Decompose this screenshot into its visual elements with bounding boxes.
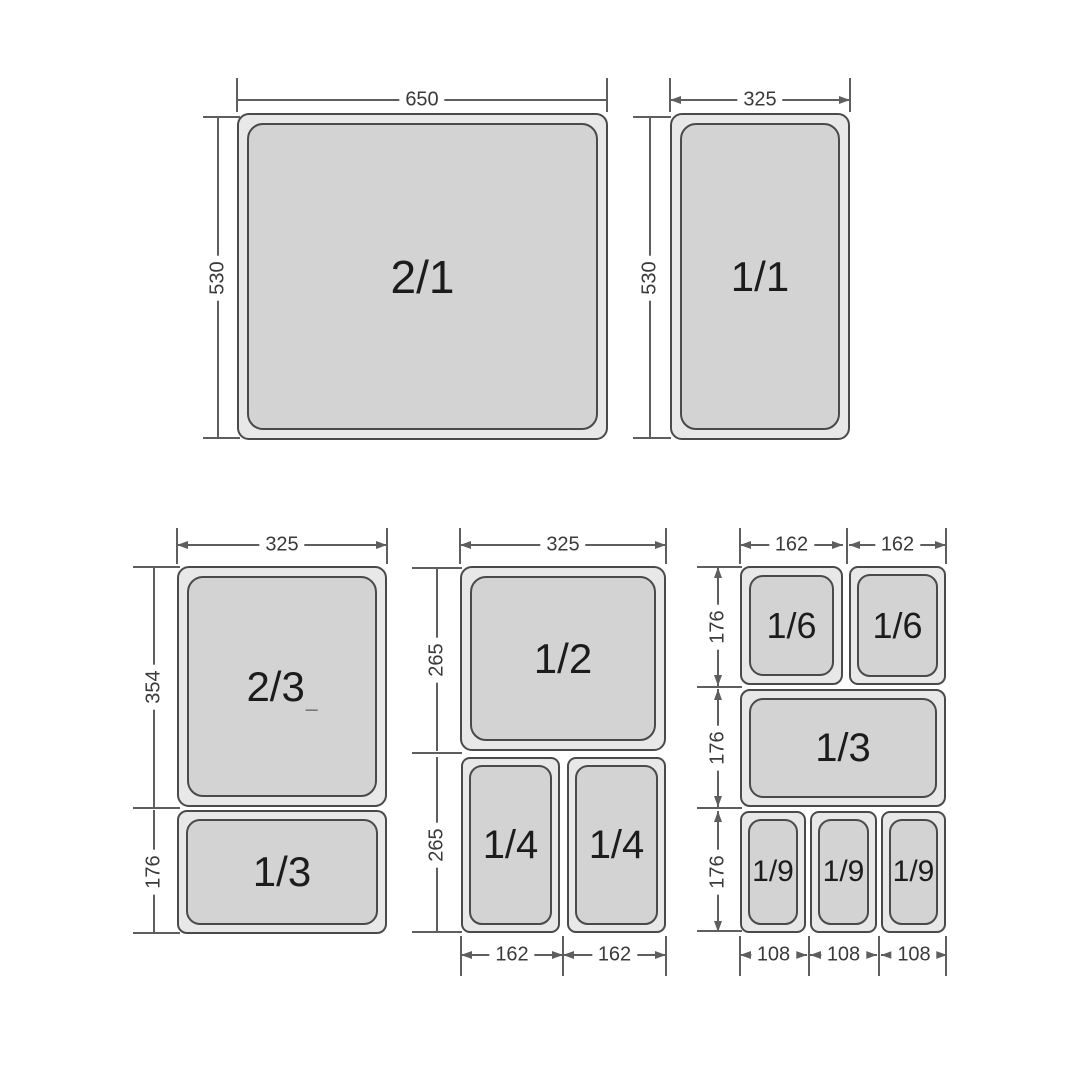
extension-line bbox=[878, 936, 880, 976]
dimension-label-176: 176 bbox=[707, 725, 730, 770]
pan-2-1: 2/1 bbox=[237, 113, 608, 440]
arrowhead-right-icon bbox=[376, 541, 387, 549]
pan-1-1: 1/1 bbox=[670, 113, 850, 440]
pan-1-3: 1/3 bbox=[740, 689, 946, 807]
arrowhead-up-icon bbox=[714, 689, 722, 700]
pan-label: 1/3 bbox=[253, 848, 311, 896]
dimension-label-325: 325 bbox=[540, 534, 585, 557]
extension-tick bbox=[203, 116, 240, 118]
pan-label-text: 1/9 bbox=[893, 855, 935, 888]
dimension-label-265: 265 bbox=[426, 637, 449, 682]
pan-label-suffix: _ bbox=[306, 690, 318, 713]
arrowhead-left-icon bbox=[740, 541, 751, 549]
pan-1-9: 1/9 bbox=[881, 811, 946, 933]
pan-label-text: 2/3 bbox=[246, 663, 304, 710]
dimension-label-162: 162 bbox=[875, 534, 920, 557]
arrowhead-left-icon bbox=[670, 96, 681, 104]
arrowhead-left-icon bbox=[461, 951, 472, 959]
arrowhead-left-icon bbox=[460, 541, 471, 549]
pan-label-text: 1/3 bbox=[815, 726, 871, 770]
arrowhead-right-icon bbox=[655, 541, 666, 549]
dimension-label-108: 108 bbox=[751, 944, 796, 967]
pan-1-6: 1/6 bbox=[740, 566, 843, 685]
pan-label: 2/3_ bbox=[246, 663, 317, 711]
extension-tick bbox=[412, 752, 462, 754]
pan-label: 1/1 bbox=[731, 253, 789, 301]
extension-tick bbox=[633, 116, 671, 118]
arrowhead-up-icon bbox=[714, 567, 722, 578]
dimension-label-530: 530 bbox=[639, 255, 662, 300]
arrowhead-left-icon bbox=[740, 951, 751, 959]
pan-1-3: 1/3 bbox=[177, 810, 387, 934]
pan-label-text: 1/3 bbox=[253, 848, 311, 895]
arrowhead-right-icon bbox=[866, 951, 877, 959]
extension-line bbox=[606, 78, 608, 112]
dimension-label-162: 162 bbox=[489, 944, 534, 967]
extension-line bbox=[236, 78, 238, 112]
dimension-label-162: 162 bbox=[592, 944, 637, 967]
pan-label-text: 1/6 bbox=[766, 605, 816, 646]
dimension-label-162: 162 bbox=[769, 534, 814, 557]
dimension-label-325: 325 bbox=[259, 534, 304, 557]
pan-2-3: 2/3_ bbox=[177, 566, 387, 807]
pan-1-2: 1/2 bbox=[460, 566, 666, 751]
extension-tick bbox=[133, 932, 180, 934]
extension-tick bbox=[633, 437, 671, 439]
extension-tick bbox=[133, 807, 180, 809]
extension-tick bbox=[133, 566, 180, 568]
dimension-label-108: 108 bbox=[891, 944, 936, 967]
pan-1-9: 1/9 bbox=[810, 811, 877, 933]
extension-tick bbox=[697, 807, 742, 809]
dimension-label-650: 650 bbox=[399, 89, 444, 112]
dimension-label-265: 265 bbox=[426, 822, 449, 867]
arrowhead-left-icon bbox=[810, 951, 821, 959]
arrowhead-up-icon bbox=[714, 811, 722, 822]
dimension-label-176: 176 bbox=[707, 604, 730, 649]
pan-label-text: 2/1 bbox=[391, 251, 455, 303]
pan-label-text: 1/4 bbox=[483, 823, 539, 867]
pan-label: 1/4 bbox=[483, 823, 539, 868]
pan-label: 1/9 bbox=[823, 855, 865, 889]
pan-label-text: 1/1 bbox=[731, 253, 789, 300]
pan-1-4: 1/4 bbox=[461, 757, 560, 933]
arrowhead-right-icon bbox=[936, 951, 947, 959]
dimension-label-176: 176 bbox=[143, 849, 166, 894]
pan-label: 1/9 bbox=[752, 855, 794, 889]
arrowhead-right-icon bbox=[839, 96, 850, 104]
pan-label-text: 1/4 bbox=[589, 823, 645, 867]
arrowhead-left-icon bbox=[563, 951, 574, 959]
extension-tick bbox=[412, 931, 462, 933]
pan-1-6: 1/6 bbox=[849, 566, 946, 685]
gastronorm-size-diagram: 2/11/12/3_1/31/21/41/41/61/61/31/91/91/9… bbox=[0, 0, 1080, 1080]
arrowhead-left-icon bbox=[177, 541, 188, 549]
extension-tick bbox=[412, 567, 462, 569]
arrowhead-right-icon bbox=[552, 951, 563, 959]
pan-label: 1/9 bbox=[893, 855, 935, 889]
pan-label: 1/3 bbox=[815, 726, 871, 771]
pan-1-4: 1/4 bbox=[567, 757, 666, 933]
pan-label-text: 1/9 bbox=[823, 855, 865, 888]
arrowhead-right-icon bbox=[935, 541, 946, 549]
arrowhead-down-icon bbox=[714, 921, 722, 932]
dimension-label-354: 354 bbox=[143, 664, 166, 709]
pan-label-text: 1/2 bbox=[534, 635, 592, 682]
arrowhead-down-icon bbox=[714, 796, 722, 807]
arrowhead-right-icon bbox=[655, 951, 666, 959]
dimension-label-108: 108 bbox=[821, 944, 866, 967]
pan-label-text: 1/9 bbox=[752, 855, 794, 888]
extension-line bbox=[846, 528, 848, 564]
extension-tick bbox=[697, 686, 742, 688]
pan-1-9: 1/9 bbox=[740, 811, 806, 933]
pan-label-text: 1/6 bbox=[872, 605, 922, 646]
dimension-label-325: 325 bbox=[737, 89, 782, 112]
arrowhead-right-icon bbox=[832, 541, 843, 549]
pan-label: 1/2 bbox=[534, 635, 592, 683]
pan-label: 2/1 bbox=[391, 250, 455, 304]
arrowhead-left-icon bbox=[849, 541, 860, 549]
arrowhead-down-icon bbox=[714, 675, 722, 686]
pan-label: 1/6 bbox=[766, 605, 816, 647]
arrowhead-right-icon bbox=[796, 951, 807, 959]
dimension-label-176: 176 bbox=[707, 849, 730, 894]
extension-tick bbox=[203, 437, 240, 439]
pan-label: 1/6 bbox=[872, 605, 922, 647]
dimension-label-530: 530 bbox=[207, 255, 230, 300]
pan-label: 1/4 bbox=[589, 823, 645, 868]
